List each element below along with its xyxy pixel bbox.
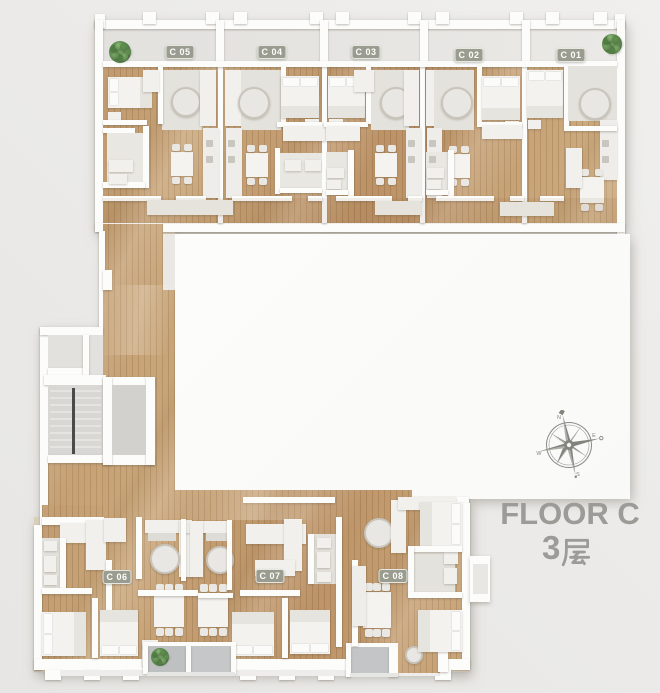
svg-text:N: N xyxy=(557,415,561,421)
svg-text:E: E xyxy=(592,433,596,439)
svg-text:W: W xyxy=(536,451,542,457)
svg-text:S: S xyxy=(576,472,580,478)
